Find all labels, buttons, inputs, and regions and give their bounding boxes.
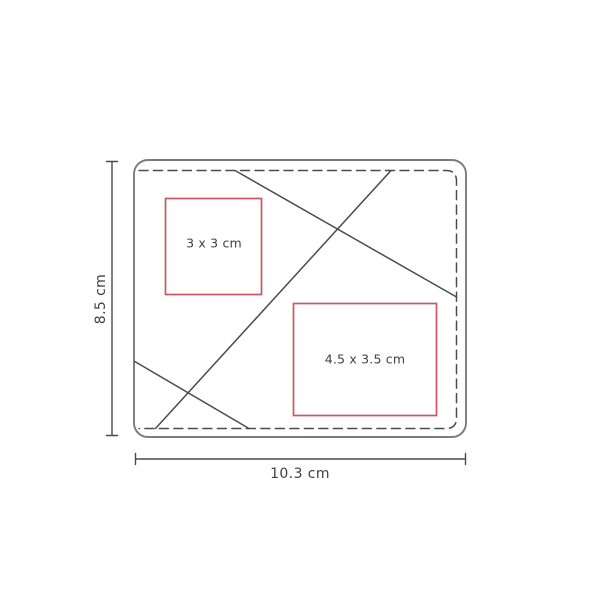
width-dimension-label: 10.3 cm <box>270 466 330 482</box>
imprint-area-small-label: 3 x 3 cm <box>186 236 242 251</box>
imprint-area-large-label: 4.5 x 3.5 cm <box>325 352 406 367</box>
height-dimension-label: 8.5 cm <box>93 274 109 324</box>
diagram-canvas: 3 x 3 cm 4.5 x 3.5 cm 8.5 cm 10.3 cm <box>0 0 600 600</box>
width-dimension-line <box>136 454 466 465</box>
product-dimension-diagram: 3 x 3 cm 4.5 x 3.5 cm 8.5 cm 10.3 cm <box>0 0 600 600</box>
